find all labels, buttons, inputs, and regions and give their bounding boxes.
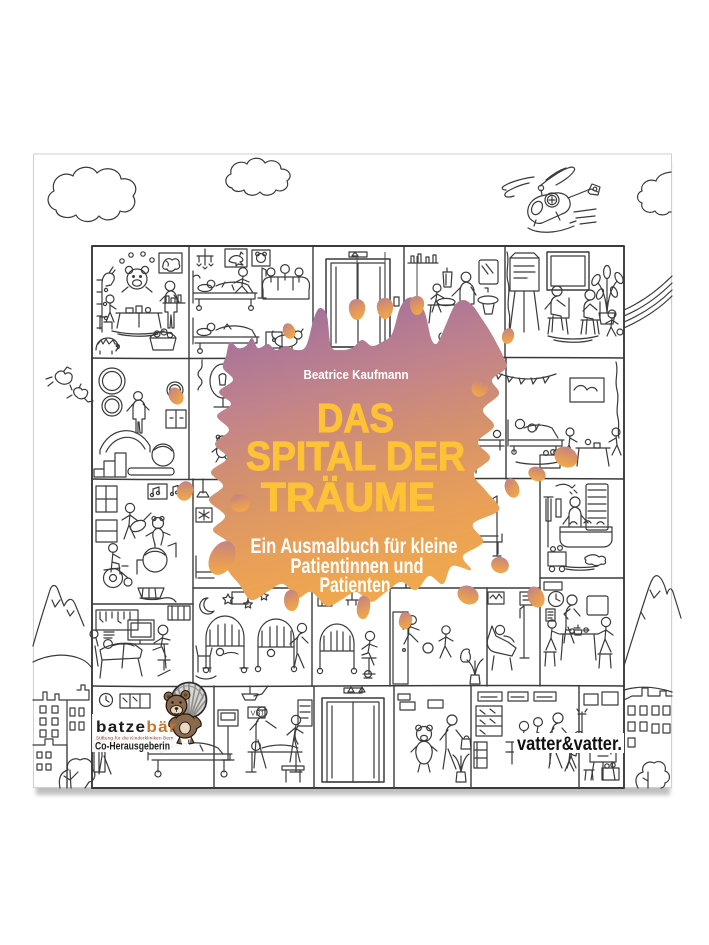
svg-text:Co-Herausgeberin: Co-Herausgeberin <box>95 741 170 753</box>
svg-text:vatter&vatter.: vatter&vatter. <box>517 733 622 755</box>
svg-text:TRÄUME: TRÄUME <box>261 474 435 520</box>
svg-text:Patienten: Patienten <box>320 573 391 597</box>
svg-text:Beatrice Kaufmann: Beatrice Kaufmann <box>304 367 409 382</box>
svg-text:batzebär: batzebär <box>96 719 177 736</box>
svg-text:SPITAL DER: SPITAL DER <box>246 433 465 479</box>
